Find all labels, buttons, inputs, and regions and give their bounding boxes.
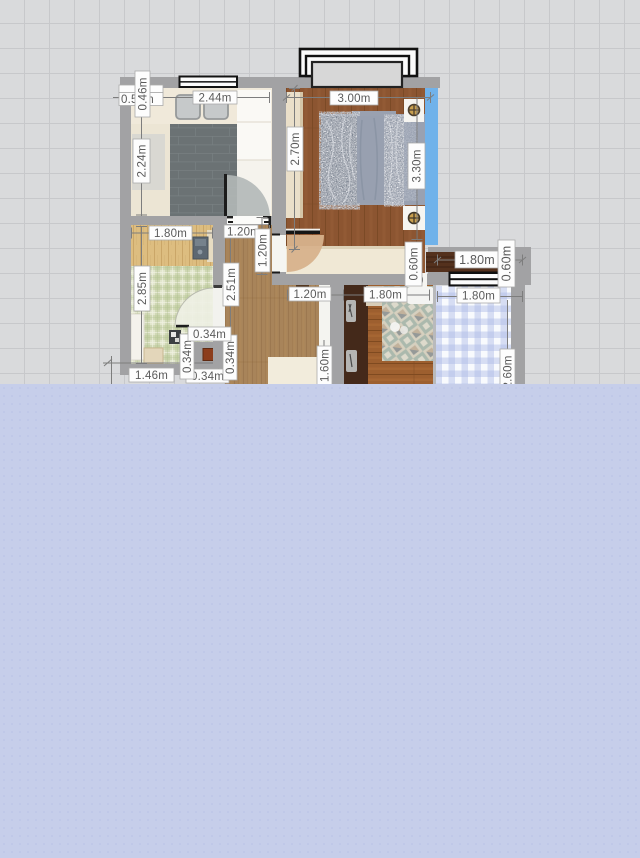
svg-text:3.30m: 3.30m bbox=[412, 150, 424, 183]
svg-text:1.80m: 1.80m bbox=[459, 253, 495, 267]
svg-text:0.46m: 0.46m bbox=[138, 78, 150, 111]
svg-text:0.34m: 0.34m bbox=[193, 329, 226, 341]
svg-text:3.00m: 3.00m bbox=[338, 93, 371, 105]
svg-text:1.46m: 1.46m bbox=[135, 370, 168, 382]
svg-text:1.60m: 1.60m bbox=[320, 349, 332, 382]
svg-text:0.34m: 0.34m bbox=[225, 341, 237, 374]
svg-text:1.80m: 1.80m bbox=[462, 291, 495, 303]
svg-text:0.34m: 0.34m bbox=[191, 371, 224, 383]
svg-text:2.44m: 2.44m bbox=[199, 93, 232, 105]
svg-text:2.85m: 2.85m bbox=[137, 272, 149, 305]
svg-text:0.60m: 0.60m bbox=[500, 246, 514, 282]
svg-text:2.70m: 2.70m bbox=[290, 133, 302, 166]
svg-text:1.80m: 1.80m bbox=[369, 290, 402, 302]
svg-text:0.34m: 0.34m bbox=[182, 340, 194, 373]
svg-text:1.20m: 1.20m bbox=[294, 289, 327, 301]
svg-text:0.60m: 0.60m bbox=[409, 248, 421, 281]
svg-text:2.60m: 2.60m bbox=[503, 356, 515, 389]
svg-text:2.24m: 2.24m bbox=[137, 145, 149, 178]
svg-text:1.20m: 1.20m bbox=[258, 234, 270, 267]
svg-text:1.80m: 1.80m bbox=[154, 228, 187, 240]
svg-text:2.51m: 2.51m bbox=[226, 268, 238, 301]
